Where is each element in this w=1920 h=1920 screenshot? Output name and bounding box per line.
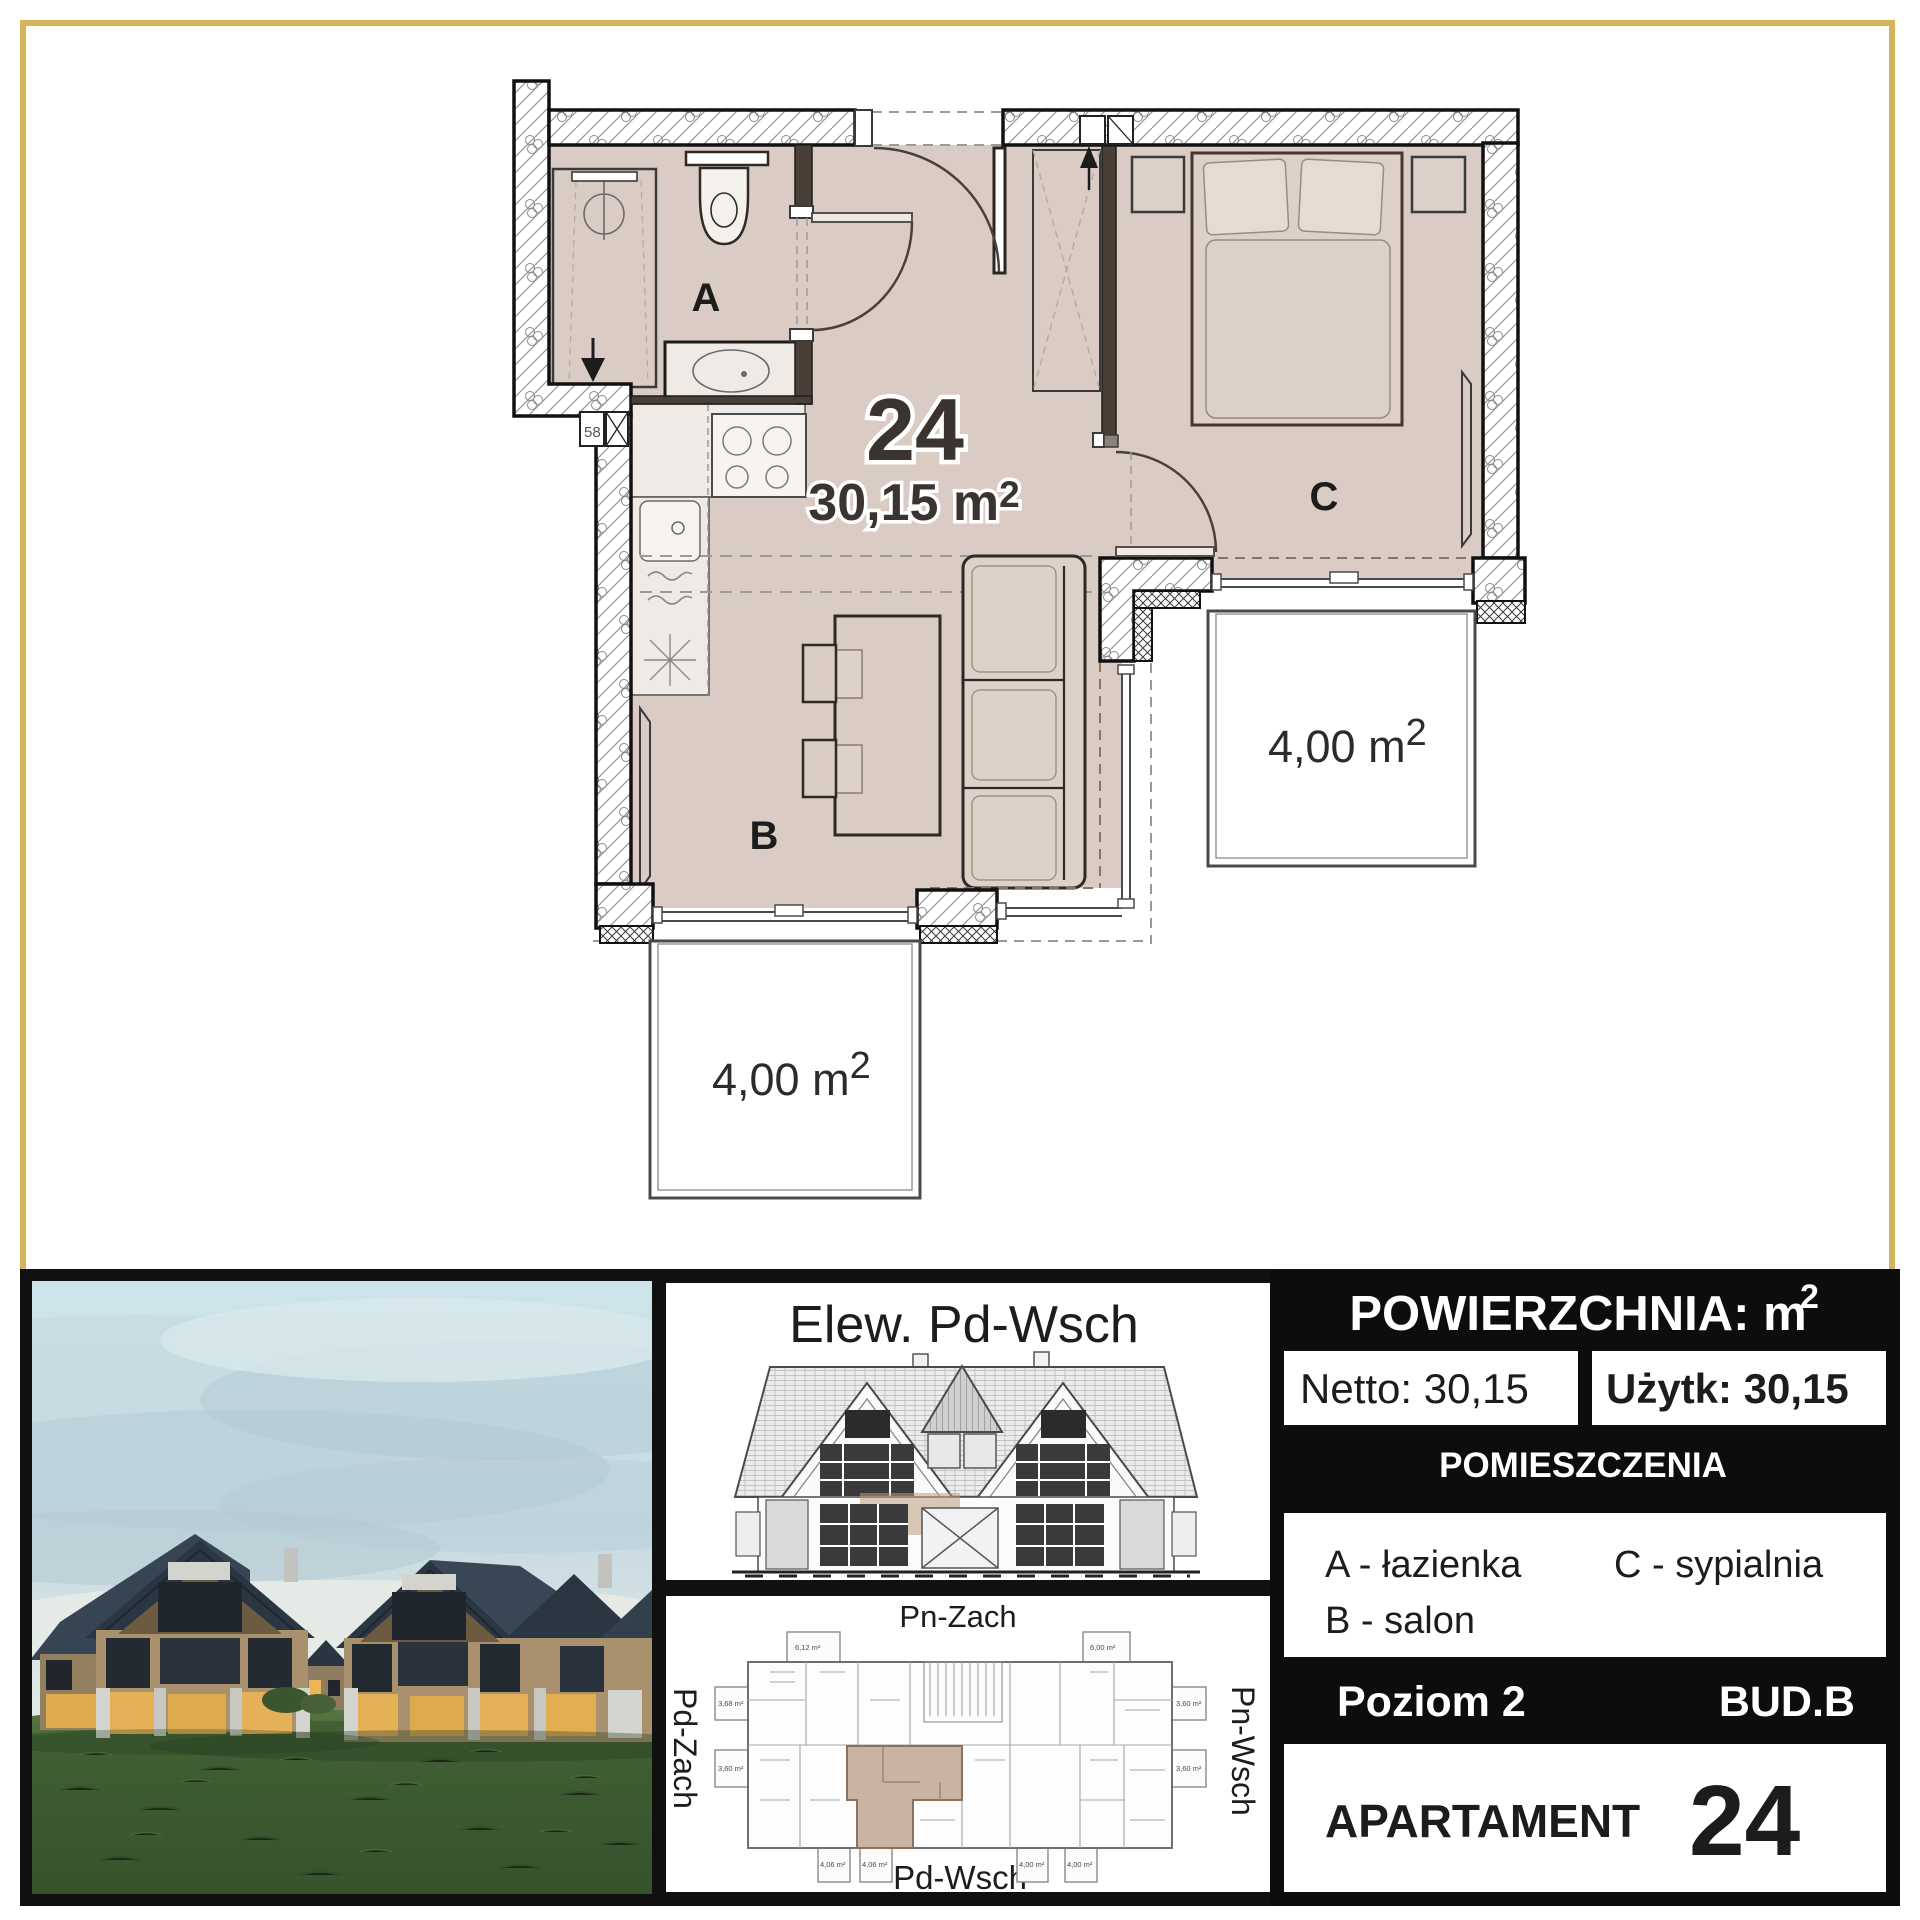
svg-text:58: 58	[584, 424, 601, 441]
svg-text:A: A	[692, 276, 721, 320]
svg-text:3,60 m²: 3,60 m²	[1176, 1699, 1202, 1708]
svg-text:3,60 m²: 3,60 m²	[1176, 1764, 1202, 1773]
svg-text:Pd-Zach: Pd-Zach	[667, 1688, 703, 1809]
svg-text:Pd-Wsch: Pd-Wsch	[893, 1859, 1027, 1896]
svg-text:B - salon: B - salon	[1325, 1600, 1475, 1642]
svg-text:30,15 m2: 30,15 m2	[808, 474, 1019, 532]
svg-text:C: C	[1310, 475, 1339, 519]
svg-text:4,06 m²: 4,06 m²	[820, 1860, 846, 1869]
svg-text:Pn-Wsch: Pn-Wsch	[1225, 1686, 1261, 1816]
svg-text:POWIERZCHNIA: m: POWIERZCHNIA: m	[1349, 1287, 1806, 1341]
svg-text:Elew. Pd-Wsch: Elew. Pd-Wsch	[789, 1296, 1139, 1354]
svg-text:Pn-Zach: Pn-Zach	[899, 1599, 1016, 1634]
svg-text:Użytk: 30,15: Użytk: 30,15	[1606, 1365, 1849, 1412]
svg-text:6,00 m²: 6,00 m²	[1090, 1643, 1116, 1652]
svg-text:BUD.B: BUD.B	[1719, 1678, 1855, 1726]
svg-text:6,12 m²: 6,12 m²	[795, 1643, 821, 1652]
svg-text:24: 24	[866, 380, 964, 479]
svg-text:4,00 m²: 4,00 m²	[1067, 1860, 1093, 1869]
svg-text:4,00 m2: 4,00 m2	[1268, 712, 1427, 772]
svg-text:Poziom 2: Poziom 2	[1337, 1678, 1526, 1726]
svg-text:24: 24	[1689, 1765, 1801, 1877]
svg-text:4,06 m²: 4,06 m²	[862, 1860, 888, 1869]
svg-text:A - łazienka: A - łazienka	[1325, 1544, 1522, 1586]
svg-text:4,00 m2: 4,00 m2	[712, 1045, 871, 1105]
svg-text:4,00 m²: 4,00 m²	[1019, 1860, 1045, 1869]
svg-text:3,60 m²: 3,60 m²	[718, 1764, 744, 1773]
svg-text:Netto: 30,15: Netto: 30,15	[1300, 1365, 1529, 1412]
svg-text:B: B	[750, 814, 779, 858]
svg-text:POMIESZCZENIA: POMIESZCZENIA	[1439, 1446, 1727, 1485]
svg-text:APARTAMENT: APARTAMENT	[1325, 1795, 1640, 1847]
svg-text:2: 2	[1800, 1278, 1819, 1316]
svg-text:C - sypialnia: C - sypialnia	[1614, 1544, 1824, 1586]
svg-text:3,68 m²: 3,68 m²	[718, 1699, 744, 1708]
